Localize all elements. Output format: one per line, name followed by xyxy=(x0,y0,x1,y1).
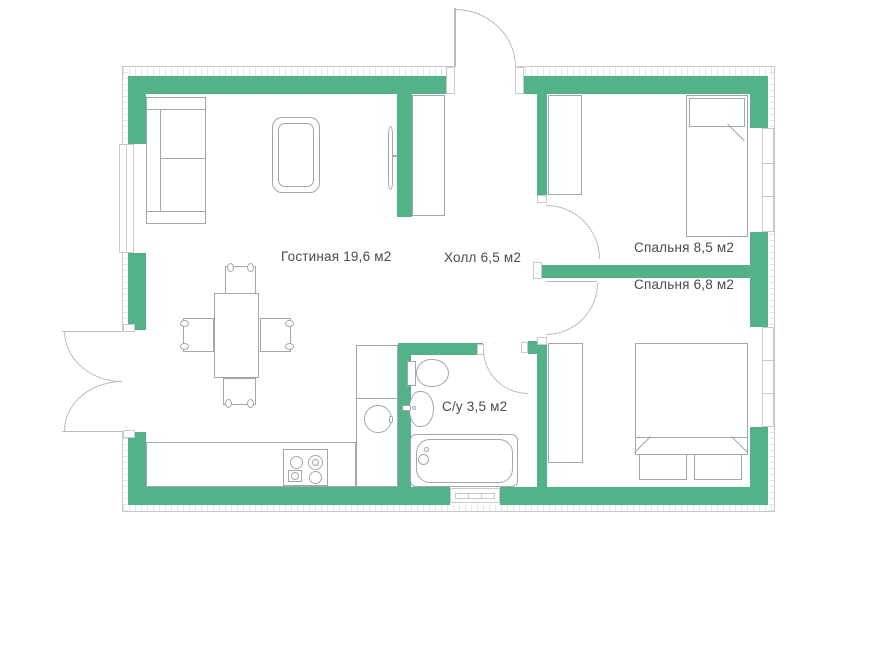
wall-left-upper xyxy=(128,76,146,144)
window-bedroom1-tick2 xyxy=(762,196,774,197)
partition-hall-bedroom1 xyxy=(537,94,547,203)
bedroom1-door-jamb-bottom xyxy=(533,262,542,279)
room-label-bedroom2: Спальня 6,8 м2 xyxy=(634,277,734,292)
sofa-backrest xyxy=(146,109,161,212)
washing-machine xyxy=(364,405,392,433)
wall-right-lower xyxy=(750,427,768,505)
window-bathroom-frame xyxy=(455,493,495,499)
window-bedroom1-tick xyxy=(762,163,774,164)
wardrobe-bedroom2 xyxy=(548,343,583,463)
sofa-seat-divider xyxy=(160,158,206,159)
toilet-bowl xyxy=(416,359,449,387)
wall-top-right xyxy=(515,76,768,94)
entrance-jamb-left xyxy=(446,67,455,94)
cooktop-burner-2-inner xyxy=(312,459,319,466)
tv-mount xyxy=(393,155,398,157)
window-bedroom2 xyxy=(762,327,774,427)
window-bathroom-tick xyxy=(468,493,469,499)
washing-machine-door-latch xyxy=(389,416,393,423)
cooktop-burner-1 xyxy=(290,456,303,469)
tv xyxy=(388,126,393,190)
double-bed xyxy=(635,343,748,455)
double-bed-pillow-left xyxy=(639,454,687,480)
wall-top-left xyxy=(128,76,455,94)
wall-right-upper xyxy=(750,76,768,128)
window-bedroom2-tick2 xyxy=(762,393,774,394)
wall-bottom-left xyxy=(128,487,450,505)
room-label-bedroom1: Спальня 8,5 м2 xyxy=(634,240,734,255)
kitchen-cabinet-divider xyxy=(356,398,398,399)
balcony-jamb-top xyxy=(123,324,135,332)
wall-bottom-right xyxy=(500,487,768,505)
entrance-door-swing xyxy=(455,9,516,67)
wardrobe-hall xyxy=(412,95,445,216)
balcony-door-leaf-bottom xyxy=(62,431,122,432)
balcony-door-swing-bottom xyxy=(64,381,122,431)
outer-hatch-bottom xyxy=(123,505,774,511)
chair-left xyxy=(183,318,214,352)
cooktop-burner-3-inner xyxy=(291,472,299,480)
partition-hall-bedroom2 xyxy=(537,337,547,487)
entrance-jamb-right xyxy=(515,67,524,94)
dining-table xyxy=(214,293,259,378)
wall-left-middle xyxy=(128,253,146,330)
balcony-door-swing-top xyxy=(64,331,122,382)
window-bedroom2-tick xyxy=(762,360,774,361)
sofa-armrest-bottom xyxy=(146,211,206,224)
wardrobe-bedroom1 xyxy=(548,95,582,195)
chair-right xyxy=(260,318,291,352)
chair-bottom xyxy=(223,378,256,405)
chair-top xyxy=(225,266,256,294)
bathtub-inner xyxy=(416,439,513,483)
single-bed-pillow xyxy=(689,98,745,127)
bathtub-drain xyxy=(418,454,429,465)
bathtub-tap xyxy=(424,447,429,452)
toilet-tank xyxy=(407,361,416,386)
partition-bathroom-jamb-stub xyxy=(528,341,537,354)
room-label-living: Гостиная 19,6 м2 xyxy=(281,249,391,264)
sink-tap xyxy=(402,405,411,411)
room-label-hall: Холл 6,5 м2 xyxy=(444,250,521,265)
bedroom2-door-leaf xyxy=(546,281,597,282)
room-label-bathroom: С/у 3,5 м2 xyxy=(442,399,507,414)
window-living-room-mullion xyxy=(126,146,127,251)
cooktop-burner-4 xyxy=(309,471,322,484)
bedroom2-door-jamb xyxy=(537,337,547,345)
wall-right-middle xyxy=(750,232,768,327)
double-bed-pillow-right xyxy=(694,454,742,480)
sink-drain xyxy=(412,406,416,410)
coffee-table-inner xyxy=(278,123,314,187)
window-bedroom1 xyxy=(762,128,774,232)
window-bathroom-tick2 xyxy=(481,493,482,499)
floor-plan: Гостиная 19,6 м2 Холл 6,5 м2 Спальня 8,5… xyxy=(0,0,886,670)
partition-living-hall xyxy=(397,94,412,217)
balcony-jamb-bottom xyxy=(123,430,135,438)
bedroom1-door-jamb-top xyxy=(537,195,547,203)
